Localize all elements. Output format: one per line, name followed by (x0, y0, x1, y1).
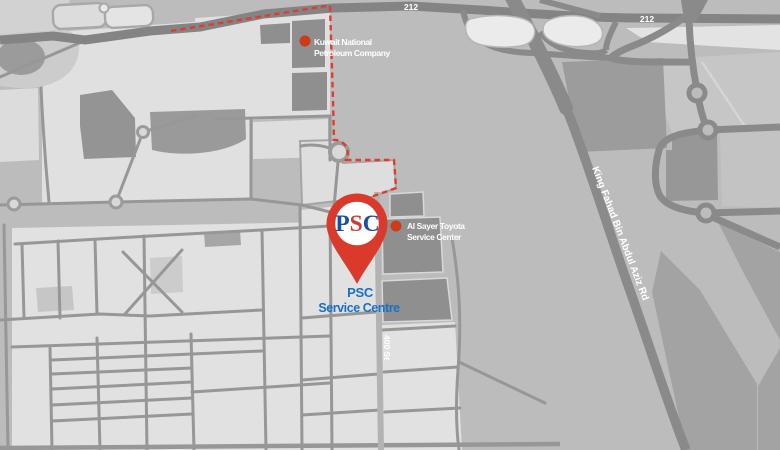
svg-text:Petroleum Company: Petroleum Company (314, 48, 391, 58)
svg-text:Kuwait National: Kuwait National (314, 37, 372, 47)
svg-text:Service Centre: Service Centre (318, 301, 400, 315)
svg-text:212: 212 (640, 14, 654, 24)
svg-text:212: 212 (404, 2, 418, 12)
svg-text:Service Center: Service Center (407, 232, 462, 242)
svg-text:PSC: PSC (335, 211, 379, 237)
svg-text:PSC: PSC (347, 285, 374, 300)
svg-text:400 St: 400 St (382, 335, 392, 360)
svg-text:Al Sayer Toyota: Al Sayer Toyota (407, 221, 465, 231)
